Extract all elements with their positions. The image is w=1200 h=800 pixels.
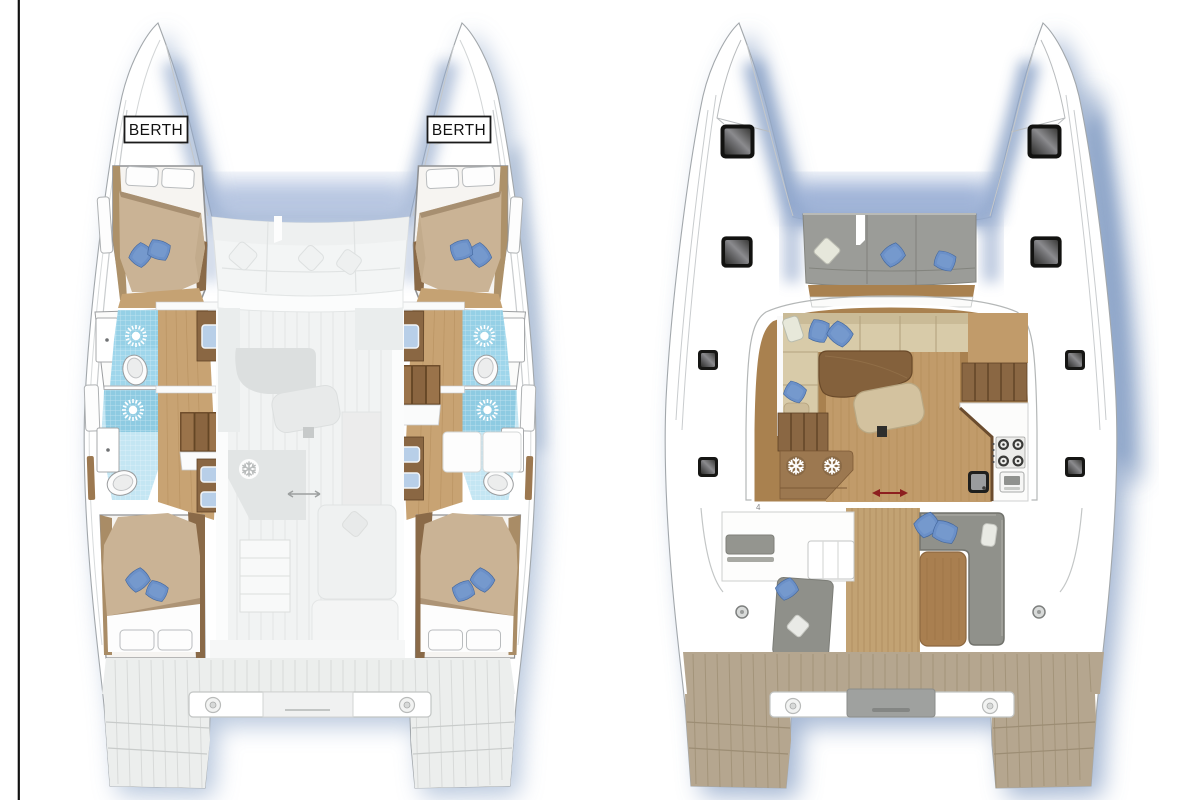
svg-text:BERTH: BERTH [432, 122, 486, 139]
svg-text:4: 4 [756, 503, 761, 512]
svg-text:BERTH: BERTH [129, 122, 183, 139]
